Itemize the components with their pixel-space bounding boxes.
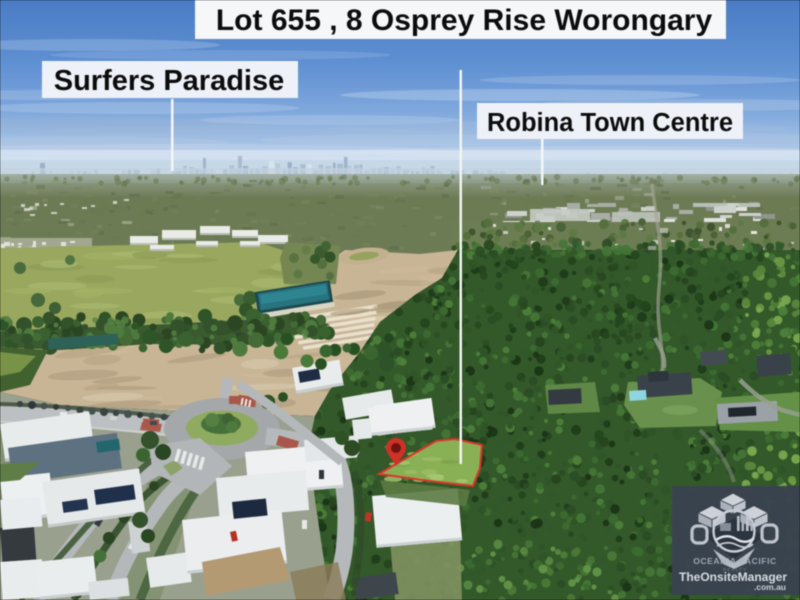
svg-text:.com.au: .com.au	[754, 582, 786, 592]
svg-text:Surfers Paradise: Surfers Paradise	[54, 65, 285, 97]
svg-text:OCEANIA PACIFIC: OCEANIA PACIFIC	[693, 556, 777, 566]
svg-text:Lot 655 , 8 Osprey Rise Worong: Lot 655 , 8 Osprey Rise Worongary	[216, 4, 713, 37]
svg-text:Robina Town Centre: Robina Town Centre	[487, 109, 733, 137]
